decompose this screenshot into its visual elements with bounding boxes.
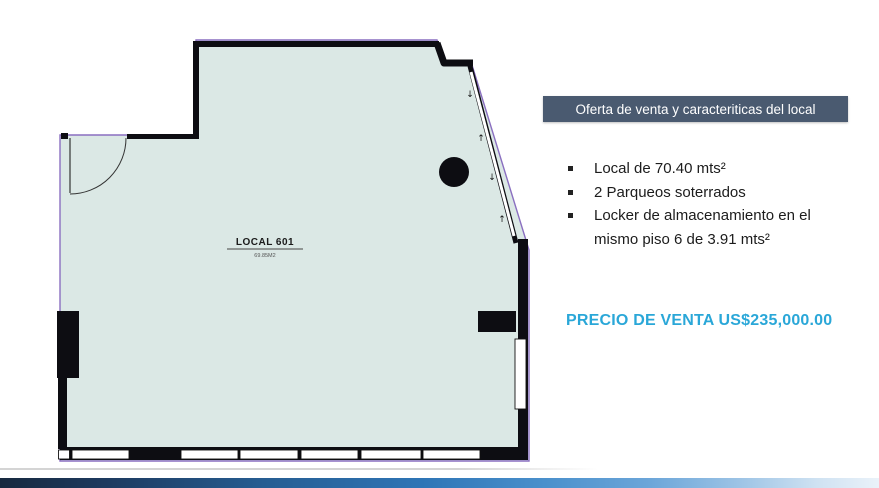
offer-title-box: Oferta de venta y caracteriticas del loc… (543, 96, 848, 122)
window-bottom (361, 450, 421, 459)
feature-text-parking: 2 Parqueos soterrados (594, 181, 746, 205)
glazing-arrow-down-icon: ↓ (488, 173, 496, 183)
door-hinge-block (61, 133, 68, 139)
slide: ↓ ↑ ↓ ↑ LOCAL 601 69.85M2 Oferta de vent… (0, 0, 879, 488)
list-item: Local de 70.40 mts² (566, 157, 858, 181)
square-bullet-icon (568, 166, 573, 171)
wall-interior-horizontal (127, 134, 199, 139)
wall-left-lower (58, 377, 67, 449)
wall-top (193, 41, 439, 47)
feature-text-locker: Locker de almacenamiento en el mismo pis… (594, 204, 858, 251)
list-item: 2 Parqueos soterrados (566, 181, 858, 205)
square-bullet-icon (568, 213, 573, 218)
left-pilaster-column (57, 311, 79, 378)
window-bottom (59, 450, 70, 459)
glazing-arrow-up-icon: ↑ (477, 134, 485, 144)
window-bottom (240, 450, 298, 459)
sale-price-text: PRECIO DE VENTA US$235,000.00 (566, 312, 832, 330)
feature-list: Local de 70.40 mts² 2 Parqueos soterrado… (566, 157, 858, 251)
window-bottom (301, 450, 358, 459)
list-item: Locker de almacenamiento en el mismo pis… (566, 204, 858, 251)
unit-area-label: 69.85M2 (254, 253, 275, 259)
wall-top-right-step (437, 43, 473, 63)
window-bottom (181, 450, 238, 459)
window-right-wall (515, 339, 526, 409)
feature-text-area: Local de 70.40 mts² (594, 157, 726, 181)
footer-gradient-bar (0, 478, 879, 488)
wall-sign-box (478, 311, 516, 332)
unit-label: LOCAL 601 (236, 237, 294, 248)
window-bottom (423, 450, 480, 459)
glazing-arrow-up-icon: ↑ (498, 215, 506, 225)
footer-divider-line (0, 468, 879, 470)
square-bullet-icon (568, 190, 573, 195)
wall-upper-left-vertical (193, 41, 199, 138)
glazing-arrow-down-icon: ↓ (466, 90, 474, 100)
window-bottom (72, 450, 129, 459)
offer-title-text: Oferta de venta y caracteriticas del loc… (575, 102, 815, 117)
structural-column-circle (439, 157, 469, 187)
room-outline (60, 40, 529, 461)
